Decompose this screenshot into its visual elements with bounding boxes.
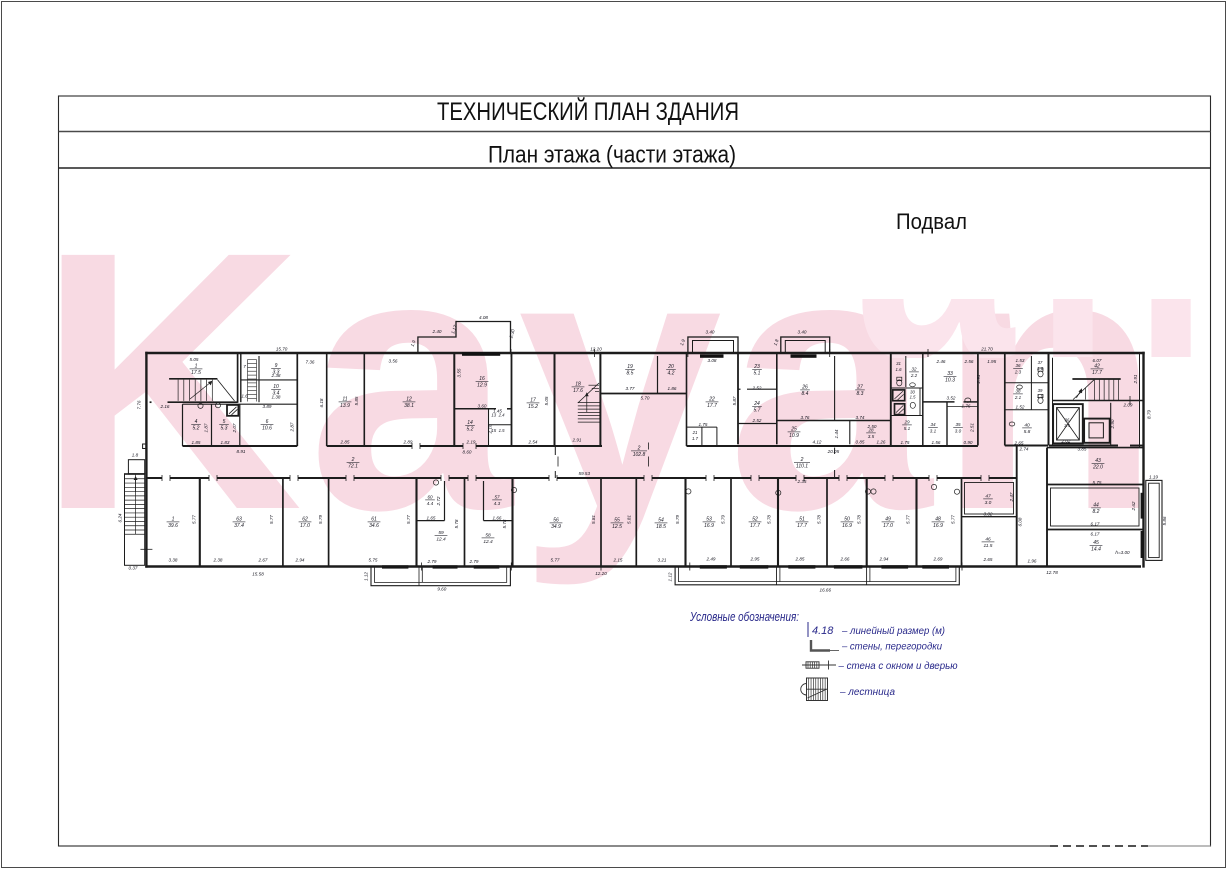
svg-text:1.75: 1.75: [699, 422, 708, 427]
svg-text:6: 6: [266, 419, 269, 425]
svg-text:1.65: 1.65: [427, 515, 436, 520]
svg-text:4.3: 4.3: [494, 501, 501, 506]
svg-text:2.94: 2.94: [879, 557, 889, 562]
svg-text:47: 47: [985, 494, 991, 500]
svg-text:ТЕХНИЧЕСКИЙ ПЛАН ЗДАНИЯ: ТЕХНИЧЕСКИЙ ПЛАН ЗДАНИЯ: [437, 96, 739, 126]
svg-text:6.18: 6.18: [319, 398, 324, 407]
svg-text:2.02: 2.02: [1061, 438, 1071, 443]
svg-text:3.89: 3.89: [263, 404, 272, 409]
svg-text:53: 53: [706, 517, 712, 523]
svg-text:12.20: 12.20: [595, 571, 607, 576]
svg-text:1.52: 1.52: [1016, 405, 1025, 410]
svg-text:3.76: 3.76: [801, 415, 810, 420]
svg-text:2.49: 2.49: [706, 557, 716, 562]
svg-text:2.62: 2.62: [1131, 501, 1136, 511]
svg-text:8.60: 8.60: [463, 450, 472, 455]
svg-text:39: 39: [1038, 388, 1043, 393]
svg-text:39.6: 39.6: [168, 523, 178, 529]
svg-text:3.74: 3.74: [856, 415, 865, 420]
svg-text:15.2: 15.2: [528, 404, 538, 410]
svg-text:2.65: 2.65: [1014, 441, 1024, 446]
svg-text:102.8: 102.8: [633, 452, 646, 458]
svg-text:3.56: 3.56: [389, 359, 398, 364]
svg-text:5.79: 5.79: [318, 515, 323, 524]
svg-text:3.21: 3.21: [658, 558, 667, 563]
svg-text:12.4: 12.4: [483, 539, 493, 545]
svg-text:5.70: 5.70: [641, 396, 650, 401]
svg-text:10.3: 10.3: [945, 378, 955, 384]
svg-text:2.16: 2.16: [160, 404, 170, 409]
svg-text:2.65: 2.65: [983, 557, 993, 562]
svg-text:3.5: 3.5: [868, 434, 875, 439]
svg-text:16.66: 16.66: [820, 587, 832, 592]
svg-text:2.69: 2.69: [933, 557, 943, 562]
svg-text:Условные обозначения:: Условные обозначения:: [689, 609, 799, 624]
svg-text:1.6: 1.6: [241, 394, 248, 399]
svg-text:63: 63: [236, 517, 242, 523]
svg-text:31: 31: [896, 361, 901, 366]
svg-text:2.66: 2.66: [840, 557, 850, 562]
svg-text:12.5: 12.5: [612, 524, 622, 530]
svg-text:8.91: 8.91: [237, 449, 246, 454]
svg-text:22.0: 22.0: [1092, 465, 1103, 471]
svg-text:1.96: 1.96: [1028, 559, 1037, 564]
svg-text:3.02: 3.02: [984, 511, 993, 516]
svg-text:Подвал: Подвал: [896, 209, 967, 234]
svg-text:52: 52: [752, 517, 758, 523]
svg-text:38.1: 38.1: [404, 403, 414, 409]
svg-text:2.35: 2.35: [797, 479, 807, 484]
svg-text:4.2: 4.2: [668, 371, 675, 377]
svg-text:2.87: 2.87: [290, 422, 295, 432]
svg-text:2.91: 2.91: [1133, 374, 1138, 384]
svg-text:1.6: 1.6: [896, 367, 903, 372]
svg-text:6.24: 6.24: [118, 513, 123, 522]
svg-text:5.1: 5.1: [904, 426, 911, 431]
svg-text:2.95: 2.95: [750, 557, 760, 562]
svg-text:5.87: 5.87: [732, 396, 737, 405]
svg-text:6.17: 6.17: [1091, 531, 1100, 536]
svg-text:2.91: 2.91: [976, 374, 981, 384]
svg-text:5.05: 5.05: [544, 396, 549, 405]
svg-text:12.4: 12.4: [436, 537, 446, 543]
svg-text:2.47: 2.47: [1009, 492, 1014, 502]
svg-text:1.12: 1.12: [668, 572, 673, 581]
svg-text:2.46: 2.46: [936, 359, 946, 364]
svg-text:8.79: 8.79: [1147, 410, 1152, 419]
svg-text:2.2: 2.2: [910, 373, 918, 378]
svg-text:12.78: 12.78: [1046, 570, 1058, 575]
svg-text:1.95: 1.95: [987, 359, 996, 364]
svg-text:– стена с окном и дверью: – стена с окном и дверью: [838, 660, 958, 672]
svg-text:11: 11: [342, 397, 347, 403]
svg-text:1: 1: [195, 364, 198, 370]
svg-text:2.1: 2.1: [1014, 395, 1022, 400]
svg-text:12: 12: [406, 397, 412, 403]
svg-text:22: 22: [708, 397, 715, 403]
svg-text:3.0: 3.0: [955, 429, 962, 434]
svg-text:43: 43: [1095, 458, 1101, 464]
svg-text:2.50: 2.50: [867, 424, 877, 429]
svg-text:2.07: 2.07: [232, 423, 237, 433]
svg-text:51: 51: [799, 517, 805, 523]
svg-text:16.9: 16.9: [842, 523, 852, 529]
svg-text:5.8: 5.8: [1024, 429, 1031, 435]
svg-text:1.38: 1.38: [272, 394, 281, 399]
svg-text:5.77: 5.77: [269, 515, 274, 524]
svg-text:3.5: 3.5: [1064, 423, 1070, 428]
svg-text:25: 25: [790, 427, 797, 433]
svg-text:34.6: 34.6: [369, 523, 379, 529]
svg-text:2.38: 2.38: [271, 373, 281, 378]
svg-text:34.9: 34.9: [551, 524, 561, 530]
svg-text:2.85: 2.85: [340, 440, 350, 445]
svg-text:2.15: 2.15: [613, 558, 623, 563]
svg-text:6.17: 6.17: [1091, 522, 1100, 527]
svg-text:5.77: 5.77: [192, 515, 197, 524]
svg-text:1.53: 1.53: [1016, 358, 1025, 363]
svg-text:5.75: 5.75: [369, 558, 378, 563]
svg-text:8.2: 8.2: [1093, 509, 1100, 515]
svg-text:33: 33: [947, 371, 953, 377]
svg-text:5.78: 5.78: [502, 519, 507, 528]
svg-text:17.7: 17.7: [707, 403, 717, 409]
svg-text:32: 32: [911, 367, 917, 372]
svg-text:9.60: 9.60: [437, 586, 446, 591]
svg-text:0.90: 0.90: [964, 440, 973, 445]
svg-text:1.26: 1.26: [877, 440, 886, 445]
svg-text:19: 19: [627, 364, 633, 370]
svg-text:17.7: 17.7: [750, 523, 760, 529]
svg-text:58: 58: [485, 533, 491, 539]
svg-text:1.75: 1.75: [901, 440, 910, 445]
svg-text:5.1: 5.1: [754, 371, 761, 377]
svg-text:18.5: 18.5: [656, 524, 666, 530]
svg-text:7.36: 7.36: [306, 360, 315, 365]
svg-text:2.51: 2.51: [970, 423, 975, 433]
svg-text:54: 54: [658, 518, 664, 524]
svg-text:38: 38: [1015, 389, 1021, 394]
svg-text:49: 49: [885, 517, 891, 523]
svg-text:48: 48: [935, 517, 941, 523]
svg-text:20: 20: [667, 364, 674, 370]
svg-text:35: 35: [955, 422, 961, 427]
svg-text:61: 61: [371, 517, 377, 523]
svg-text:8.3: 8.3: [857, 391, 864, 397]
svg-text:2.19: 2.19: [466, 440, 476, 445]
svg-text:2.91: 2.91: [572, 438, 582, 443]
svg-text:15 1.5: 15 1.5: [491, 428, 505, 433]
svg-text:8.4: 8.4: [802, 391, 809, 397]
svg-text:4.4: 4.4: [427, 501, 434, 506]
svg-text:3.40: 3.40: [706, 330, 715, 335]
svg-text:2.79: 2.79: [427, 559, 437, 564]
svg-text:23: 23: [753, 364, 760, 370]
svg-text:5.2: 5.2: [467, 427, 474, 433]
svg-text:5.78: 5.78: [817, 515, 822, 524]
svg-text:0.37: 0.37: [129, 566, 138, 571]
svg-text:2.72: 2.72: [436, 496, 441, 506]
svg-text:15.58: 15.58: [252, 572, 264, 577]
svg-text:5.81: 5.81: [591, 515, 596, 524]
svg-text:2: 2: [637, 446, 641, 452]
svg-text:12.20: 12.20: [590, 347, 602, 352]
svg-text:27: 27: [856, 385, 863, 391]
svg-text:2.38: 2.38: [213, 558, 223, 563]
svg-text:45: 45: [1093, 540, 1099, 546]
svg-text:1.5: 1.5: [910, 395, 916, 400]
svg-text:1.6: 1.6: [1037, 394, 1044, 399]
svg-text:2.67: 2.67: [258, 558, 268, 563]
svg-text:5.81: 5.81: [627, 515, 632, 524]
svg-text:2.40: 2.40: [432, 329, 442, 334]
svg-text:План этажа (части этажа): План этажа (части этажа): [488, 141, 736, 168]
svg-text:110.1: 110.1: [796, 464, 808, 470]
svg-text:10.9: 10.9: [789, 433, 799, 439]
svg-text:10: 10: [273, 384, 279, 390]
svg-text:4.12: 4.12: [813, 440, 822, 445]
svg-text:4.08: 4.08: [479, 315, 488, 320]
svg-text:57: 57: [494, 495, 500, 500]
svg-text:5.78: 5.78: [767, 515, 772, 524]
svg-text:2.09: 2.09: [1123, 403, 1133, 408]
svg-text:2.54: 2.54: [528, 440, 538, 445]
svg-text:11.5: 11.5: [984, 543, 993, 549]
svg-text:3.40: 3.40: [798, 330, 807, 335]
svg-text:3.52: 3.52: [947, 396, 956, 401]
svg-text:36: 36: [1065, 418, 1070, 423]
svg-text:8.5: 8.5: [627, 371, 634, 377]
svg-text:2.56: 2.56: [964, 359, 974, 364]
svg-text:1.12: 1.12: [364, 572, 369, 581]
svg-text:5.05: 5.05: [190, 357, 199, 362]
svg-text:1.66: 1.66: [493, 515, 502, 520]
svg-text:10.6: 10.6: [262, 426, 272, 432]
svg-text:34: 34: [930, 422, 936, 427]
svg-text:14.4: 14.4: [1091, 547, 1101, 553]
svg-text:3.1: 3.1: [930, 429, 937, 434]
svg-text:15.70: 15.70: [276, 347, 288, 352]
svg-text:2.16: 2.16: [488, 424, 493, 434]
svg-text:2.85: 2.85: [795, 557, 805, 562]
svg-text:59: 59: [438, 530, 444, 536]
svg-text:21.70: 21.70: [980, 347, 993, 352]
svg-text:5.3: 5.3: [221, 426, 228, 432]
svg-text:60: 60: [427, 495, 433, 500]
svg-text:9: 9: [275, 363, 278, 369]
svg-text:55: 55: [614, 518, 620, 524]
svg-text:59.53: 59.53: [579, 471, 591, 476]
svg-text:16.9: 16.9: [933, 523, 943, 529]
svg-text:5.77: 5.77: [406, 515, 411, 524]
svg-text:17.6: 17.6: [573, 388, 583, 394]
svg-text:– лестница: – лестница: [839, 686, 895, 698]
svg-text:62: 62: [302, 517, 308, 523]
svg-text:2.74: 2.74: [1019, 447, 1029, 452]
svg-text:5.78: 5.78: [857, 515, 862, 524]
svg-text:3.38: 3.38: [169, 558, 178, 563]
svg-text:2.52: 2.52: [752, 418, 762, 423]
svg-text:1.56: 1.56: [932, 440, 941, 445]
svg-text:16.9: 16.9: [704, 523, 714, 529]
svg-text:2.79: 2.79: [469, 559, 479, 564]
svg-text:h=3.00: h=3.00: [1115, 550, 1130, 555]
svg-text:37.4: 37.4: [234, 523, 244, 529]
svg-text:13.9: 13.9: [340, 403, 350, 409]
svg-text:21: 21: [692, 430, 698, 435]
svg-text:14: 14: [467, 420, 473, 426]
svg-text:7: 7: [243, 364, 246, 369]
svg-text:5.85: 5.85: [354, 396, 359, 405]
svg-text:2.52: 2.52: [752, 386, 762, 391]
svg-text:5.79: 5.79: [675, 515, 680, 524]
svg-text:26: 26: [801, 385, 808, 391]
svg-text:5.78: 5.78: [454, 519, 459, 528]
svg-text:17.7: 17.7: [797, 523, 807, 529]
svg-text:12.9: 12.9: [477, 383, 487, 389]
svg-text:16: 16: [479, 376, 485, 382]
svg-text:– стены, перегородки: – стены, перегородки: [841, 641, 942, 653]
svg-text:2.3: 2.3: [1014, 370, 1022, 375]
svg-text:0.85: 0.85: [856, 440, 865, 445]
svg-text:– линейный размер (м): – линейный размер (м): [841, 625, 945, 637]
svg-text:5.75: 5.75: [1093, 480, 1102, 485]
svg-text:3.55: 3.55: [457, 368, 462, 377]
svg-text:56: 56: [553, 518, 559, 524]
svg-text:36: 36: [1015, 363, 1021, 368]
svg-text:72.1: 72.1: [348, 464, 358, 470]
svg-text:17: 17: [530, 398, 536, 404]
svg-text:1.86: 1.86: [668, 386, 677, 391]
svg-text:1.6: 1.6: [1037, 366, 1044, 371]
svg-text:4.18: 4.18: [812, 625, 834, 637]
svg-text:1.83: 1.83: [221, 440, 230, 445]
svg-text:1.8: 1.8: [132, 453, 139, 458]
svg-text:6.08: 6.08: [1018, 517, 1023, 526]
svg-text:7.76: 7.76: [137, 400, 142, 409]
svg-text:24: 24: [753, 401, 760, 407]
svg-text:5: 5: [223, 419, 226, 425]
svg-text:44: 44: [1093, 503, 1099, 509]
svg-text:50: 50: [844, 517, 850, 523]
svg-text:3.60: 3.60: [478, 404, 487, 409]
svg-text:1.76: 1.76: [962, 404, 971, 409]
svg-text:1.85: 1.85: [192, 440, 201, 445]
svg-text:17.0: 17.0: [300, 523, 310, 529]
svg-text:1.45: 1.45: [493, 409, 502, 414]
svg-text:17.5: 17.5: [191, 370, 201, 376]
svg-text:1.19: 1.19: [1149, 475, 1158, 480]
svg-text:3.08: 3.08: [708, 358, 717, 363]
svg-text:1.7: 1.7: [692, 436, 699, 441]
svg-text:1: 1: [172, 517, 175, 523]
svg-text:5.77: 5.77: [951, 515, 956, 524]
svg-text:1.87: 1.87: [204, 423, 209, 432]
svg-text:5.77: 5.77: [906, 515, 911, 524]
svg-text:46: 46: [985, 537, 991, 543]
svg-text:2.90: 2.90: [1110, 419, 1115, 429]
svg-text:2: 2: [800, 457, 804, 463]
svg-text:5.86: 5.86: [1162, 516, 1167, 525]
svg-text:2.94: 2.94: [295, 558, 305, 563]
svg-text:20.05: 20.05: [827, 449, 840, 454]
svg-text:5.77: 5.77: [551, 558, 560, 563]
svg-text:3.85: 3.85: [1078, 447, 1087, 452]
svg-text:5.2: 5.2: [193, 426, 200, 432]
svg-text:18: 18: [575, 382, 581, 388]
svg-text:42: 42: [1094, 364, 1100, 370]
svg-text:6.07: 6.07: [1093, 358, 1102, 363]
svg-text:5.79: 5.79: [721, 515, 726, 524]
svg-text:3.0: 3.0: [985, 500, 992, 506]
svg-text:2: 2: [351, 457, 355, 463]
svg-text:2.89: 2.89: [403, 440, 413, 445]
svg-text:1.44: 1.44: [834, 429, 839, 438]
svg-text:17.0: 17.0: [883, 523, 893, 529]
svg-text:17.7: 17.7: [1092, 370, 1102, 376]
svg-text:29: 29: [903, 420, 910, 425]
svg-text:4: 4: [195, 419, 198, 425]
svg-text:40: 40: [1024, 423, 1030, 429]
svg-text:3.77: 3.77: [626, 386, 635, 391]
svg-text:5.7: 5.7: [754, 408, 761, 414]
svg-text:37: 37: [1038, 360, 1043, 365]
